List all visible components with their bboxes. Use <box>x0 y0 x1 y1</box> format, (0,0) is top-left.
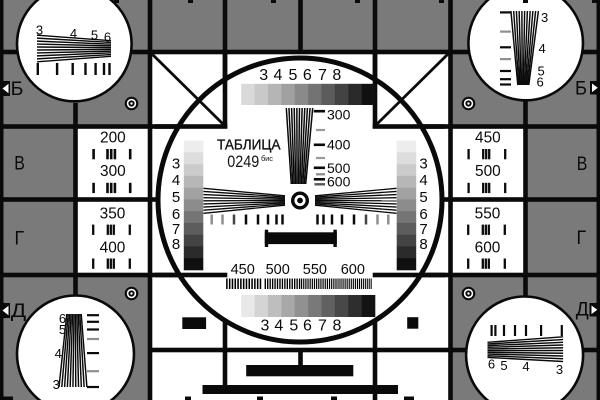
svg-text:450: 450 <box>475 130 501 147</box>
svg-text:Д: Д <box>11 301 27 322</box>
svg-text:7: 7 <box>318 67 327 84</box>
svg-text:4: 4 <box>70 26 77 41</box>
svg-text:8: 8 <box>172 236 180 253</box>
svg-text:600: 600 <box>327 174 351 190</box>
svg-text:ТАБЛИЦА: ТАБЛИЦА <box>217 137 281 153</box>
svg-text:600: 600 <box>341 262 365 278</box>
svg-text:300: 300 <box>327 107 351 123</box>
svg-text:400: 400 <box>327 137 351 153</box>
svg-text:Д: Д <box>576 300 589 321</box>
svg-text:550: 550 <box>475 205 501 222</box>
svg-text:8: 8 <box>333 318 342 335</box>
svg-text:500: 500 <box>475 163 501 180</box>
svg-text:6: 6 <box>303 67 312 84</box>
svg-text:3: 3 <box>261 318 270 335</box>
svg-text:3: 3 <box>36 22 43 37</box>
svg-text:3: 3 <box>419 155 427 172</box>
svg-text:3: 3 <box>172 155 180 172</box>
svg-text:450: 450 <box>231 262 255 278</box>
svg-text:5: 5 <box>289 67 298 84</box>
svg-text:Б: Б <box>11 79 24 100</box>
svg-text:4: 4 <box>419 172 427 189</box>
svg-text:4: 4 <box>522 359 529 374</box>
svg-text:6: 6 <box>537 75 544 90</box>
svg-text:5: 5 <box>91 28 98 43</box>
svg-text:5: 5 <box>172 189 180 206</box>
svg-text:6: 6 <box>104 30 111 45</box>
svg-text:6: 6 <box>303 318 312 335</box>
svg-text:8: 8 <box>332 67 341 84</box>
svg-text:350: 350 <box>100 205 126 222</box>
svg-text:500: 500 <box>266 262 290 278</box>
svg-text:7: 7 <box>318 318 327 335</box>
svg-text:550: 550 <box>303 262 327 278</box>
svg-text:4: 4 <box>539 41 546 56</box>
svg-text:200: 200 <box>100 130 126 147</box>
svg-text:4: 4 <box>55 346 62 361</box>
svg-text:3: 3 <box>259 67 268 84</box>
svg-text:5: 5 <box>59 322 66 337</box>
svg-text:6: 6 <box>488 357 495 372</box>
svg-text:бис: бис <box>261 154 273 163</box>
svg-text:Б: Б <box>575 79 587 100</box>
svg-text:600: 600 <box>475 239 501 256</box>
svg-text:300: 300 <box>100 163 126 180</box>
svg-text:3: 3 <box>541 10 548 25</box>
svg-text:4: 4 <box>274 67 283 84</box>
svg-text:В: В <box>14 154 25 175</box>
svg-text:В: В <box>577 154 588 175</box>
svg-text:4: 4 <box>172 172 180 189</box>
svg-text:8: 8 <box>419 236 427 253</box>
svg-text:5: 5 <box>500 358 507 373</box>
svg-text:5: 5 <box>419 189 427 206</box>
svg-text:Г: Г <box>577 228 587 249</box>
svg-text:0249: 0249 <box>227 153 259 171</box>
svg-text:3: 3 <box>53 377 60 392</box>
svg-text:3: 3 <box>556 362 563 377</box>
svg-text:Г: Г <box>15 228 25 249</box>
svg-text:400: 400 <box>100 239 126 256</box>
svg-text:4: 4 <box>274 318 283 335</box>
svg-text:5: 5 <box>289 318 298 335</box>
